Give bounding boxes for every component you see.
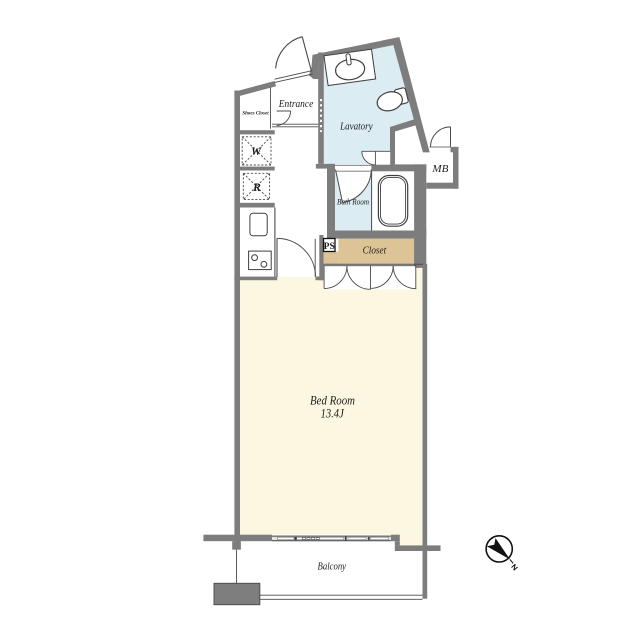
- svg-text:Bed Room: Bed Room: [310, 393, 355, 408]
- svg-text:Shoes Closet: Shoes Closet: [242, 112, 269, 117]
- svg-text:Lavatory: Lavatory: [339, 121, 373, 132]
- svg-text:Balcony: Balcony: [318, 561, 347, 572]
- svg-text:R: R: [252, 182, 261, 194]
- svg-text:13.4J: 13.4J: [321, 406, 345, 420]
- svg-text:MB: MB: [431, 163, 448, 175]
- svg-text:Closet: Closet: [363, 245, 387, 256]
- svg-text:Bath Room: Bath Room: [337, 197, 369, 207]
- svg-text:PS: PS: [324, 242, 335, 252]
- svg-text:Entrance: Entrance: [278, 98, 313, 110]
- svg-text:W: W: [251, 146, 262, 158]
